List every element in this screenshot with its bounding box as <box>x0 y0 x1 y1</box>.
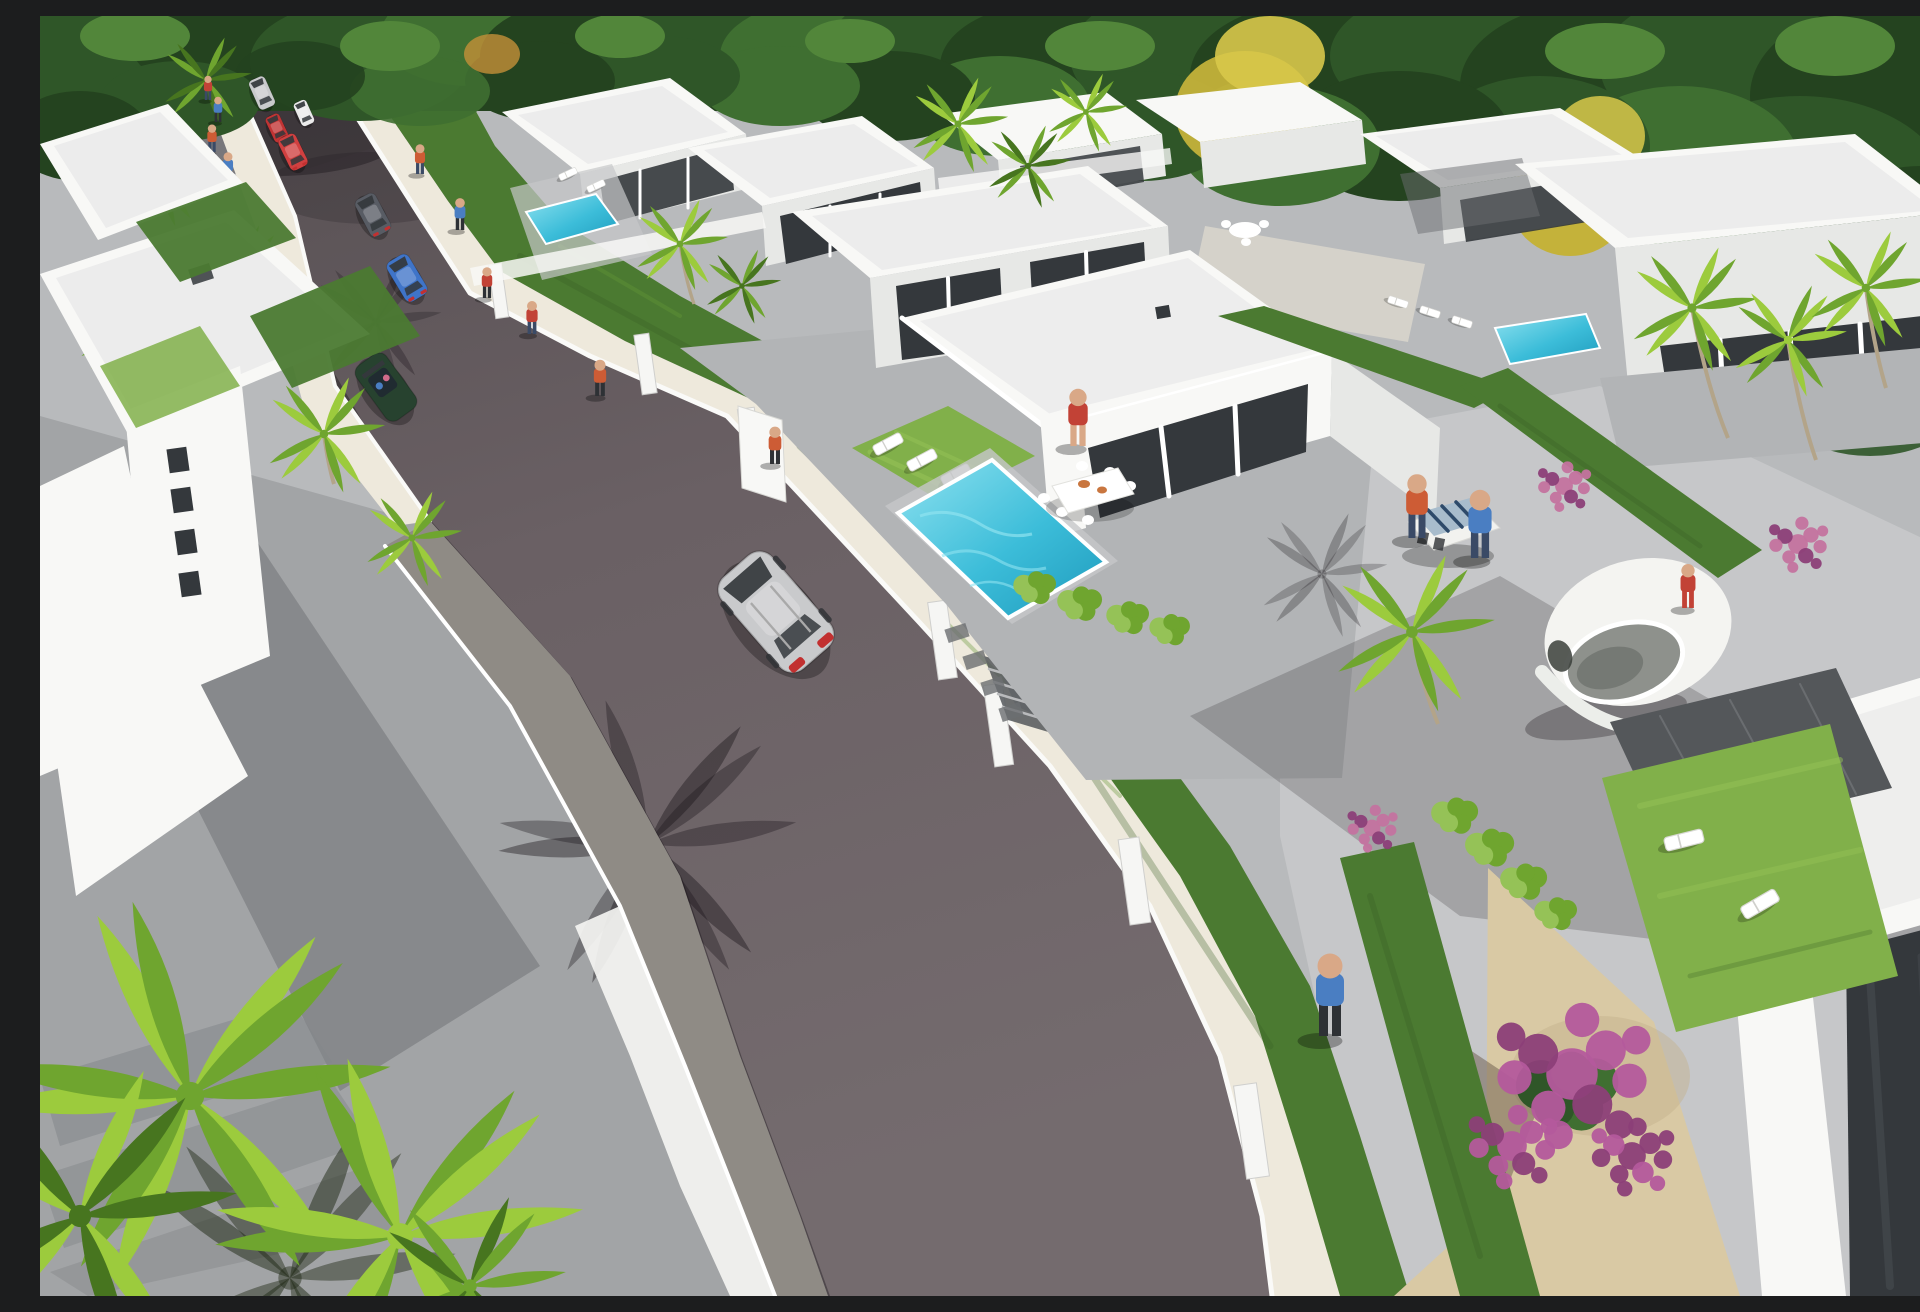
scene-svg <box>40 16 1920 1296</box>
chair <box>1082 515 1094 525</box>
window-slit <box>174 529 197 556</box>
patio-chair <box>1221 220 1231 228</box>
palm-crown <box>1083 109 1089 115</box>
ellipse <box>340 21 440 71</box>
palm-crown <box>677 241 684 248</box>
palm-crown <box>408 534 415 541</box>
orange-tree <box>464 34 520 74</box>
patio-chair <box>1241 238 1251 246</box>
palm-crown <box>1406 626 1418 638</box>
palm-crown <box>69 1205 91 1227</box>
ellipse <box>805 19 895 63</box>
palm-crown <box>1317 569 1326 578</box>
aerial-villa-development-render: Aerial 3D architectural rendering of a m… <box>40 16 1920 1296</box>
roof-vent <box>1155 305 1171 319</box>
palm-crown <box>278 1266 301 1289</box>
ellipse <box>1545 23 1665 79</box>
chair <box>1076 461 1088 471</box>
patio-table <box>1229 222 1261 238</box>
villa-column <box>1235 406 1238 474</box>
window-slit <box>166 447 189 474</box>
palm-crown <box>320 430 329 439</box>
palm-crown <box>739 283 745 289</box>
window-slit <box>170 487 193 514</box>
bowl <box>1078 480 1090 488</box>
bowl <box>1097 487 1107 494</box>
ellipse <box>1775 16 1895 76</box>
palm-crown <box>1784 336 1792 344</box>
ellipse <box>1045 21 1155 71</box>
palm-crown <box>1862 284 1871 293</box>
window-slit <box>178 571 201 598</box>
ellipse <box>575 16 665 58</box>
yellow-tree <box>1215 16 1325 96</box>
patio-chair <box>1259 220 1269 228</box>
chair <box>1038 493 1050 503</box>
palm-crown <box>463 1279 477 1293</box>
palm-crown <box>954 120 961 127</box>
palm-crown <box>1687 303 1696 312</box>
palm-crown <box>1025 163 1031 169</box>
